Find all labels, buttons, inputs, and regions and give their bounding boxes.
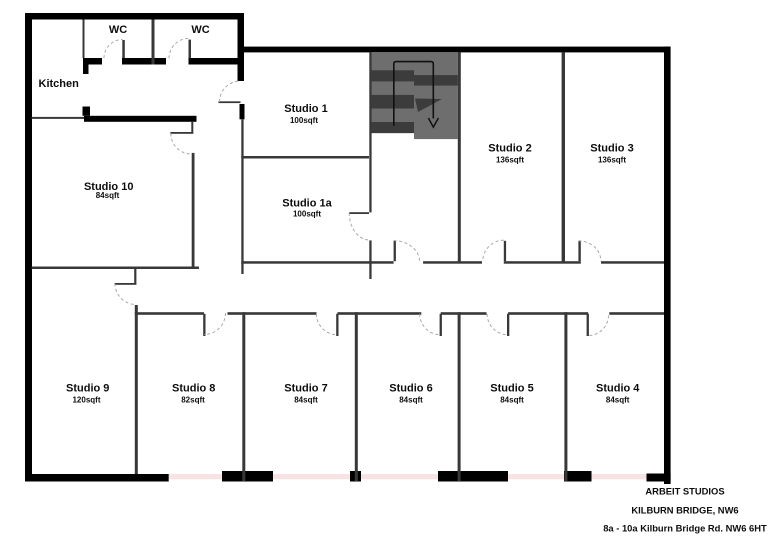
svg-text:136sqft: 136sqft: [496, 156, 524, 165]
svg-text:Studio 1a: Studio 1a: [282, 197, 332, 209]
svg-text:Studio 3: Studio 3: [590, 143, 633, 155]
svg-text:84sqft: 84sqft: [294, 395, 318, 404]
svg-text:100sqft: 100sqft: [293, 209, 321, 218]
svg-text:84sqft: 84sqft: [500, 395, 524, 404]
svg-text:136sqft: 136sqft: [598, 156, 626, 165]
svg-text:Studio 5: Studio 5: [490, 383, 533, 395]
svg-text:120sqft: 120sqft: [72, 395, 100, 404]
svg-text:8a - 10a Kilburn Bridge Rd. NW: 8a - 10a Kilburn Bridge Rd. NW6 6HT: [603, 523, 767, 534]
svg-text:Kitchen: Kitchen: [39, 78, 80, 90]
svg-text:Studio 4: Studio 4: [596, 383, 640, 395]
svg-text:Studio 1: Studio 1: [284, 103, 327, 115]
svg-text:Studio 9: Studio 9: [66, 383, 109, 395]
svg-text:84sqft: 84sqft: [96, 191, 120, 200]
svg-text:Studio 8: Studio 8: [172, 383, 215, 395]
svg-text:WC: WC: [109, 24, 127, 36]
svg-text:ARBEIT STUDIOS: ARBEIT STUDIOS: [645, 485, 724, 496]
svg-text:84sqft: 84sqft: [399, 395, 423, 404]
svg-text:84sqft: 84sqft: [606, 395, 630, 404]
svg-text:KILBURN BRIDGE, NW6: KILBURN BRIDGE, NW6: [631, 504, 738, 515]
svg-text:82sqft: 82sqft: [181, 395, 205, 404]
svg-text:Studio 7: Studio 7: [284, 383, 327, 395]
svg-text:WC: WC: [191, 24, 209, 36]
svg-text:100sqft: 100sqft: [290, 116, 318, 125]
svg-text:Studio 6: Studio 6: [389, 383, 432, 395]
svg-text:Studio 2: Studio 2: [488, 143, 531, 155]
